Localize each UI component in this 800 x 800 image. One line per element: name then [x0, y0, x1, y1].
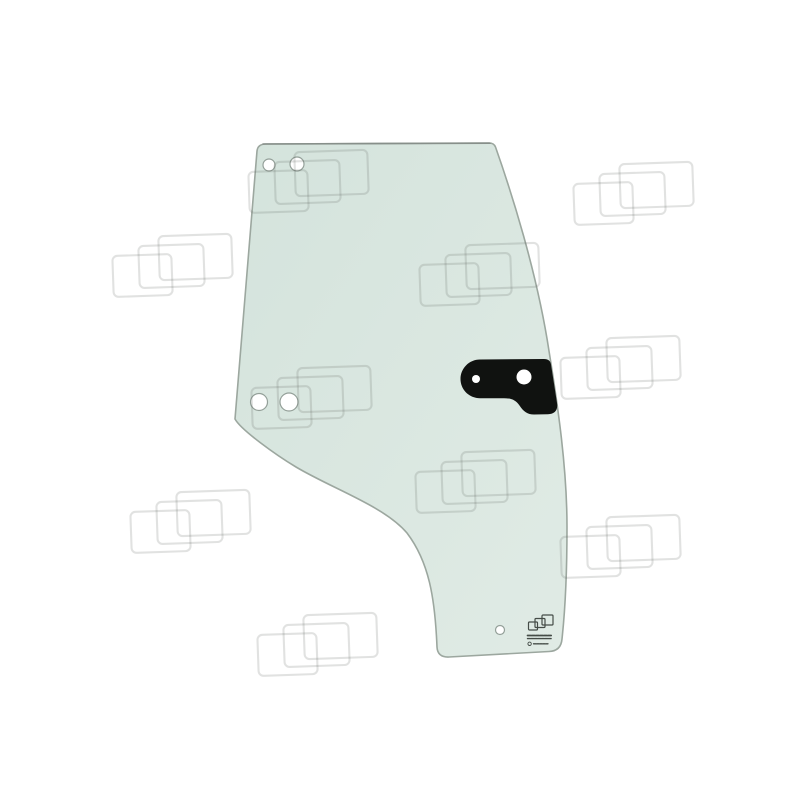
watermark-logo-icon: [112, 234, 232, 297]
glass-hole: [263, 159, 275, 171]
glass-panel-group: [235, 143, 567, 657]
glass-top-edge-line: [263, 143, 490, 144]
watermark-logo-icon: [257, 613, 377, 676]
glass-hole: [290, 157, 304, 171]
watermark-logo-icon: [560, 515, 680, 578]
watermark-logo-icon: [573, 162, 693, 225]
glass-hole: [280, 393, 298, 411]
bracket-hole: [472, 375, 480, 383]
watermark-logo-icon: [130, 490, 250, 553]
glass-hole: [496, 626, 505, 635]
bracket-hole: [517, 370, 532, 385]
watermark-logo-icon: [560, 336, 680, 399]
image-canvas: [0, 0, 800, 800]
product-photo: [0, 0, 800, 800]
